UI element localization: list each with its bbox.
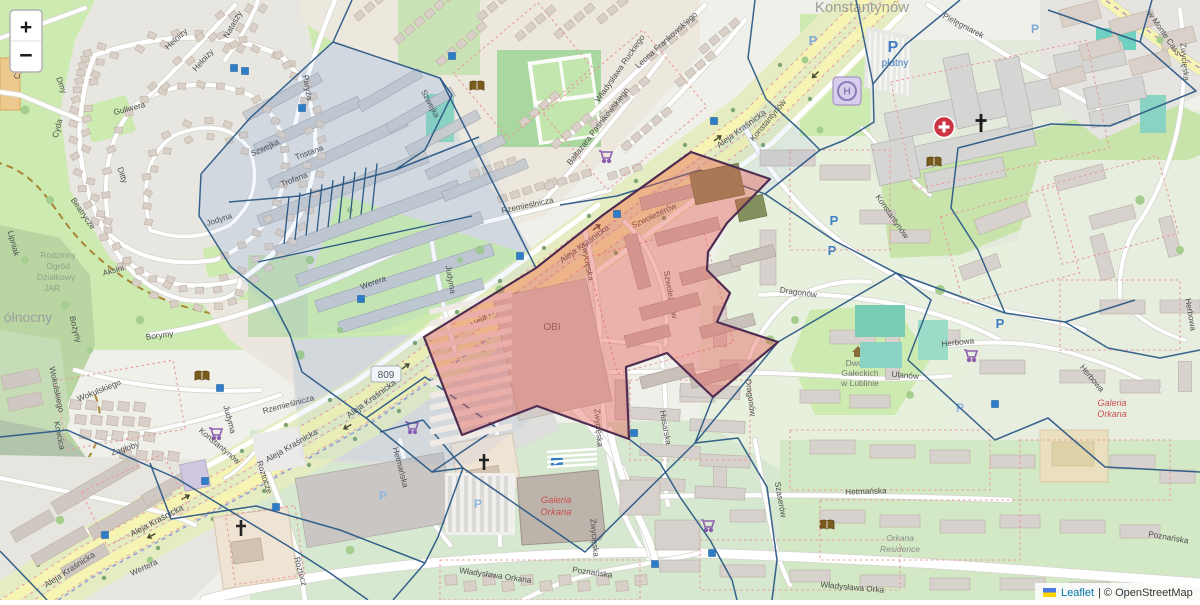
svg-text:P: P	[474, 497, 482, 511]
svg-text:Orkana: Orkana	[540, 507, 571, 518]
svg-text:Konstantynów: Konstantynów	[815, 0, 909, 16]
svg-text:Gałeckich: Gałeckich	[841, 368, 879, 378]
svg-text:Rodzinny: Rodzinny	[40, 250, 76, 260]
svg-text:P: P	[809, 33, 818, 48]
svg-text:Galeria: Galeria	[1097, 398, 1126, 408]
svg-text:Ogród: Ogród	[46, 261, 70, 271]
svg-text:H: H	[843, 86, 851, 98]
svg-text:P: P	[379, 489, 387, 503]
svg-text:| © OpenStreetMap: | © OpenStreetMap	[1098, 587, 1193, 599]
svg-text:Orkana: Orkana	[886, 533, 914, 543]
svg-text:Hetmańska: Hetmańska	[845, 486, 887, 496]
svg-text:−: −	[19, 42, 32, 68]
svg-text:ółnocny: ółnocny	[4, 309, 52, 325]
svg-text:Orkana: Orkana	[1097, 409, 1127, 419]
svg-text:w Lublinie: w Lublinie	[840, 378, 879, 388]
svg-text:P: P	[830, 213, 839, 228]
svg-text:Leaflet: Leaflet	[1061, 587, 1094, 599]
svg-text:płatny: płatny	[882, 58, 909, 69]
svg-text:P: P	[888, 39, 899, 56]
svg-text:P: P	[1031, 22, 1039, 36]
svg-text:Działkowy: Działkowy	[37, 272, 76, 282]
svg-text:JAR: JAR	[44, 283, 60, 293]
svg-text:Galeria: Galeria	[541, 495, 572, 506]
svg-text:P: P	[996, 316, 1005, 331]
svg-text:+: +	[20, 16, 32, 39]
